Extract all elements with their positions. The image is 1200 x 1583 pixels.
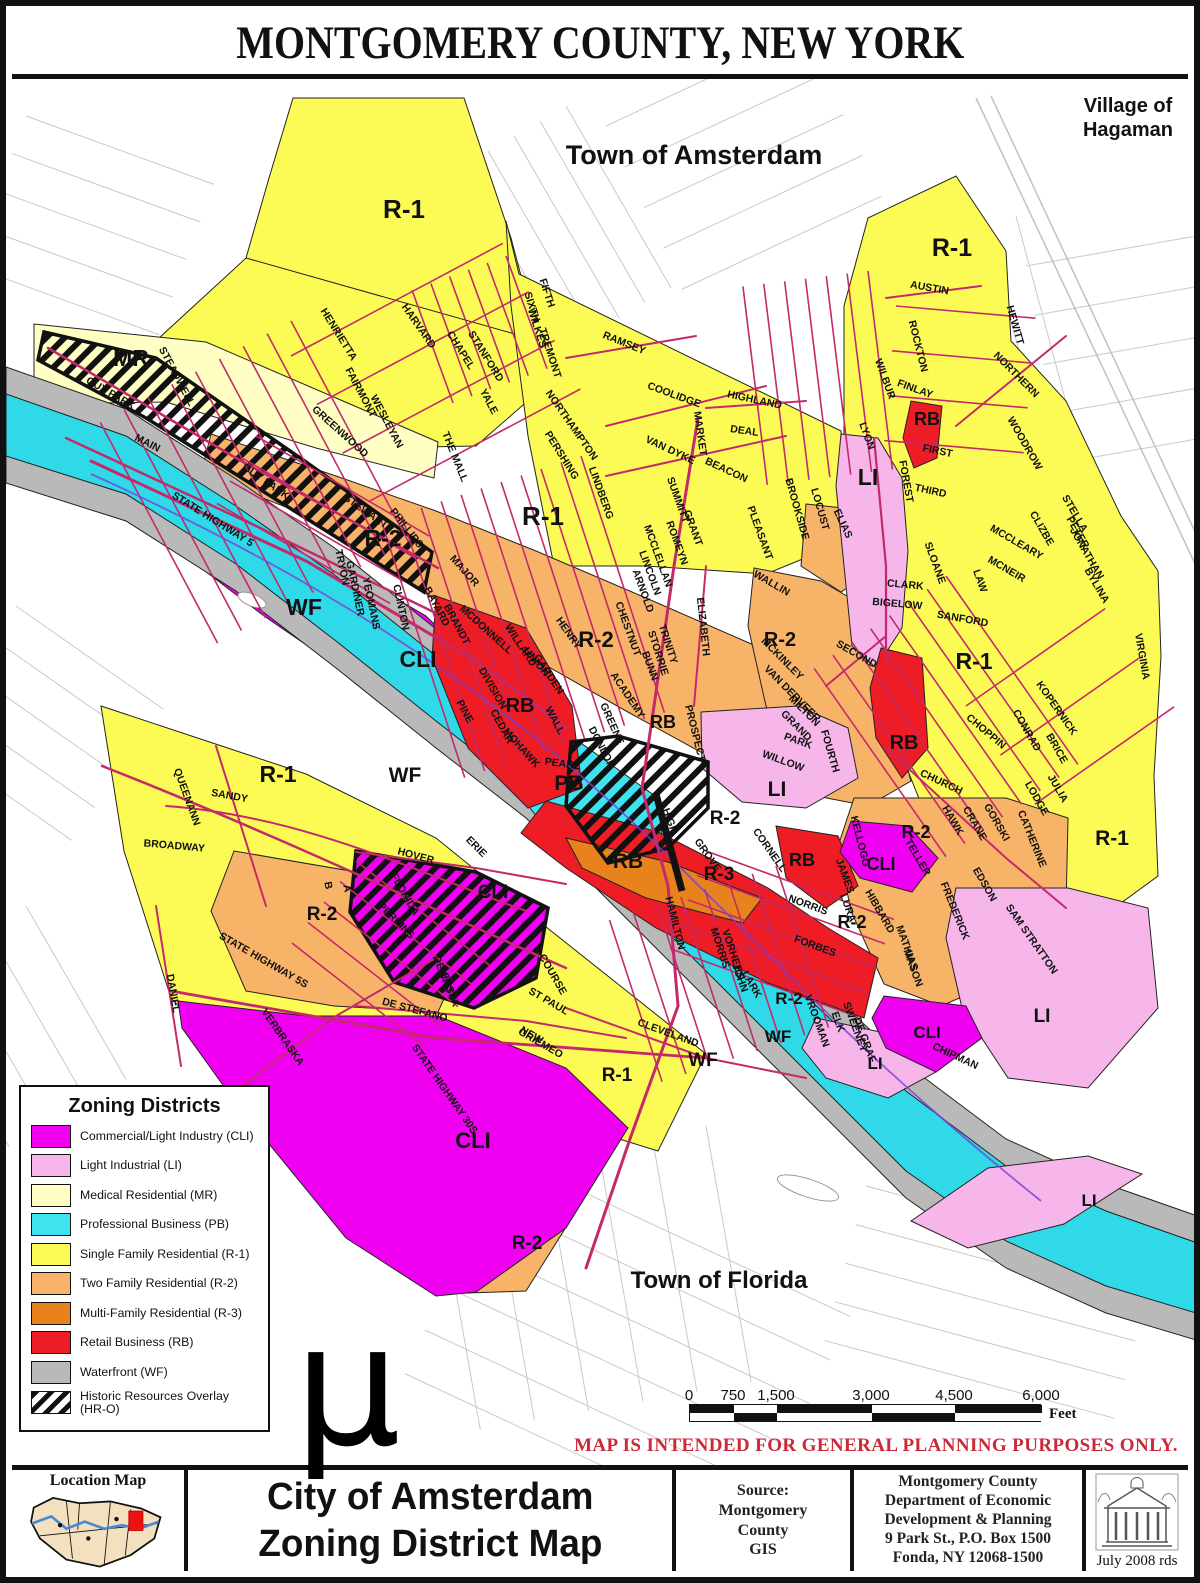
street-label: HENRIETTA <box>318 306 360 363</box>
legend-item: Professional Business (PB) <box>31 1213 258 1236</box>
grid-line <box>243 459 416 559</box>
street-label: MAJOR <box>447 553 482 590</box>
legend-label: Two Family Residential (R-2) <box>80 1277 238 1290</box>
grid-line <box>324 902 458 1007</box>
street-label: VROOMAN <box>802 993 832 1049</box>
zone-label: RB <box>506 695 535 717</box>
street-label: WOODROW <box>1005 415 1045 473</box>
street-label: VIRGINIA <box>1132 632 1152 680</box>
street-label: WILLARD <box>502 622 539 669</box>
scale-tick: 4,500 <box>935 1387 973 1404</box>
road <box>48 348 438 568</box>
street-label: DANIEL <box>164 973 183 1014</box>
zone-r2 <box>748 568 911 806</box>
scale-bar: 07501,5003,0004,5006,000 Feet <box>689 1387 1109 1422</box>
source-panel: Source:MontgomeryCountyGIS <box>676 1470 854 1571</box>
street-label: STATE HIGHWAY 30S <box>409 1042 480 1136</box>
street-label: TREMONT <box>536 327 564 381</box>
legend-label: Medical Residential (MR) <box>80 1189 217 1202</box>
scale-segment <box>734 1405 777 1413</box>
department-panel: Montgomery CountyDepartment of EconomicD… <box>854 1470 1086 1571</box>
road <box>91 461 566 728</box>
grid-line <box>706 851 894 919</box>
department-line: 9 Park St., P.O. Box 1500 <box>885 1530 1051 1549</box>
zone-r2 <box>838 798 1068 1006</box>
grid-line <box>826 276 850 475</box>
street-label: WESLEYAN <box>368 393 406 450</box>
zone-r1 <box>844 176 1161 936</box>
grid-line <box>805 279 829 478</box>
grid-line <box>462 166 567 348</box>
zone-label: CLI <box>913 1023 940 1042</box>
legend-swatch <box>31 1391 71 1414</box>
grid-line <box>172 384 289 605</box>
grid-line <box>1016 216 1083 467</box>
street-label: TRYON <box>332 548 351 586</box>
grid-line <box>381 521 464 778</box>
street-label: MAIN <box>133 432 162 455</box>
zone-label: R-2 <box>307 904 338 925</box>
street-label: FAIRMONT <box>342 366 379 421</box>
context-label: Town of Florida <box>631 1267 809 1294</box>
zone-label: WF <box>688 1050 718 1071</box>
zone-label: PB <box>554 772 583 795</box>
street-label: ELIAS <box>831 507 855 540</box>
zone-label: LI <box>867 1054 882 1073</box>
street-label: THE MALL <box>439 430 470 484</box>
zone-cli <box>350 851 548 1008</box>
zone-label: R-2 <box>837 912 866 932</box>
zone-r2 <box>801 504 878 592</box>
street-label: FORBES <box>792 933 837 959</box>
road <box>102 766 566 968</box>
zone-label: MR <box>113 345 149 371</box>
legend-items: Commercial/Light Industry (CLI)Light Ind… <box>21 1125 268 1416</box>
zone-label: R-2 <box>901 822 930 842</box>
street-label: FIFTH <box>537 277 558 309</box>
street-label: WALL <box>542 705 567 737</box>
zone-label: LI <box>768 778 787 801</box>
grid-line <box>889 616 1021 804</box>
legend-item: Retail Business (RB) <box>31 1331 258 1354</box>
street-label: GREENE <box>597 701 626 746</box>
grid-line <box>682 196 881 289</box>
department-line: Montgomery County <box>898 1473 1037 1492</box>
zone-li <box>946 888 1158 1088</box>
street-label: GREENWOOD <box>310 404 371 461</box>
legend-label: Light Industrial (LI) <box>80 1159 182 1172</box>
street-label: PERSHING <box>542 429 581 482</box>
grid-line <box>785 281 809 480</box>
map-banner: MONTGOMERY COUNTY, NEW YORK <box>12 12 1188 79</box>
zone-li <box>701 706 858 808</box>
street-label: NORRIS <box>787 893 829 918</box>
grid-line <box>776 866 829 1028</box>
grid-line <box>544 1155 589 1411</box>
street-label: LINDBERG <box>586 465 616 521</box>
grid-line <box>868 271 892 470</box>
source-line: County <box>738 1521 789 1541</box>
grid-line <box>450 277 491 390</box>
road <box>586 1006 678 1268</box>
street-label: B <box>321 881 334 891</box>
street-label: NORTHAMPTON <box>543 388 600 463</box>
department-line: Department of Economic <box>885 1492 1051 1511</box>
zone-rb <box>870 648 928 778</box>
grid-line <box>1052 384 1200 414</box>
grid-line <box>487 263 528 376</box>
zone-label: R-2 <box>710 808 741 829</box>
legend-swatch <box>31 1184 71 1207</box>
legend-swatch <box>31 1243 71 1266</box>
street-label: DE GRAF <box>851 1016 879 1065</box>
grid-line <box>598 1145 643 1401</box>
street-label: JULIA <box>1045 772 1071 805</box>
grid-line <box>923 241 990 492</box>
legend-title: Zoning Districts <box>21 1095 268 1118</box>
grid-line <box>743 286 767 485</box>
street-label: STORRIE <box>645 629 671 677</box>
street-label: ERIE <box>463 834 489 860</box>
legend-item: Two Family Residential (R-2) <box>31 1272 258 1295</box>
street-label: GUY PARK <box>240 461 292 502</box>
map-title-line2: Zoning District Map <box>258 1521 602 1567</box>
grid-line <box>566 106 671 288</box>
zone-cli <box>840 821 938 892</box>
street-label: TRINITY <box>656 623 680 666</box>
disclaimer-text: MAP IS INTENDED FOR GENERAL PLANNING PUR… <box>551 1435 1200 1457</box>
grid-line <box>1043 335 1200 365</box>
zone-li <box>836 434 908 668</box>
location-map-graphic <box>17 1490 179 1571</box>
zoning-legend: Zoning Districts Commercial/Light Indust… <box>19 1085 270 1432</box>
grid-line <box>308 922 442 1027</box>
road <box>171 991 706 1058</box>
grid-line <box>100 422 217 643</box>
zone-label: R-1 <box>932 234 972 262</box>
zone-label: CLI <box>455 1128 490 1153</box>
grid-line <box>540 121 645 303</box>
grid-line <box>317 292 529 405</box>
legend-item: Medical Residential (MR) <box>31 1184 258 1207</box>
street-label: HIGHLAND <box>726 388 783 411</box>
scale-segment <box>690 1413 734 1421</box>
zone-li <box>802 1018 936 1098</box>
road <box>236 958 436 1091</box>
grid-line <box>866 1186 1156 1264</box>
scale-segment <box>955 1413 1042 1421</box>
grid-line <box>435 1174 480 1430</box>
street-label: GARDINER <box>343 560 366 618</box>
grid-line <box>217 504 390 604</box>
road <box>566 336 696 358</box>
grid-line <box>26 906 126 1079</box>
grid-line <box>814 668 946 856</box>
road <box>166 806 526 911</box>
grid-line <box>256 436 429 536</box>
street-label: STEADWELL <box>156 345 198 409</box>
zone-label: RB <box>890 732 919 754</box>
grid-line <box>985 224 1052 475</box>
grid-line <box>896 306 1035 318</box>
road <box>606 386 766 426</box>
zone-label: LI <box>1081 1191 1096 1210</box>
street-label: BRANDT <box>441 602 473 647</box>
street-label: DE STEFANO <box>381 996 449 1025</box>
street-label: STELLA <box>1059 493 1090 535</box>
source-line: GIS <box>749 1540 777 1560</box>
legend-label: Retail Business (RB) <box>80 1336 193 1349</box>
grid-line <box>506 1156 850 1317</box>
grid-line <box>356 861 490 966</box>
street-label: BROADWAY <box>143 837 205 854</box>
grid-line <box>966 608 1105 706</box>
street-label: CORNELL <box>750 826 789 875</box>
footer-bar: Location Map City of Amsterdam Zoning Di… <box>12 1465 1188 1571</box>
street-label: ST PAUL <box>526 985 571 1018</box>
street-label: MOHAWK <box>500 726 542 771</box>
scale-bar-ticks: 07501,5003,0004,5006,000 <box>689 1387 1109 1404</box>
grid-line <box>16 606 163 709</box>
scale-tick: 0 <box>685 1387 693 1404</box>
legend-swatch <box>31 1331 71 1354</box>
street-label: WILBUR <box>872 357 898 401</box>
zone-label: R-2 <box>364 525 401 551</box>
street-label: MCNEIR <box>986 554 1028 585</box>
bridge <box>656 794 682 891</box>
street-label: VERBRASKA <box>258 1007 306 1069</box>
grid-line <box>663 155 862 248</box>
street-label: JONATHAN <box>1067 526 1106 582</box>
road <box>606 436 786 476</box>
street-label: PARK <box>782 731 814 752</box>
river-island <box>236 589 268 611</box>
street-label: HIBBARD <box>862 888 897 936</box>
street-label: MILTON <box>786 693 822 729</box>
scale-segment <box>734 1413 777 1421</box>
amsterdam-highlight <box>129 1511 143 1530</box>
grid-line <box>12 154 200 222</box>
grid-line <box>501 482 584 739</box>
street-label: BUNN <box>639 650 661 683</box>
zone-li <box>911 1156 1142 1248</box>
grid-line <box>489 1164 534 1420</box>
scale-tick: 3,000 <box>852 1387 890 1404</box>
street-label: HARVARD <box>399 302 439 351</box>
zone-label: WF <box>389 764 422 787</box>
legend-swatch <box>31 1272 71 1295</box>
zone-label: R-1 <box>522 501 564 531</box>
grid-line <box>633 912 686 1074</box>
road <box>642 418 698 788</box>
street-label: TELLER <box>902 837 933 879</box>
grid-line <box>6 266 159 334</box>
legend-swatch <box>31 1125 71 1148</box>
zone-label: LI <box>858 464 878 490</box>
zone-r2 <box>201 434 851 796</box>
street-label: STEWART <box>341 492 390 532</box>
street-label: ROCKTON <box>906 319 930 373</box>
grid-line <box>6 229 173 297</box>
legend-item: Commercial/Light Industry (CLI) <box>31 1125 258 1148</box>
zone-pb <box>506 728 662 853</box>
grid-line <box>461 495 544 752</box>
street-label: FOREST <box>896 459 915 504</box>
street-label: BROOKSIDE <box>782 477 811 541</box>
road <box>66 438 446 618</box>
street-label: ESSEX <box>438 971 461 1008</box>
road <box>886 748 1066 908</box>
legend-swatch <box>31 1302 71 1325</box>
street-label: WILKES <box>525 307 549 350</box>
location-map-title: Location Map <box>50 1472 146 1490</box>
street-label: HENRY <box>553 615 584 652</box>
zone-label: R-1 <box>259 761 296 787</box>
grid-line <box>384 211 489 393</box>
source-line: Source: <box>737 1481 789 1501</box>
grid-line <box>410 196 515 378</box>
grid-line <box>670 949 858 1017</box>
scale-bar-unit: Feet <box>1049 1406 1076 1423</box>
zone-label: CLI <box>399 646 436 672</box>
zone-label: CLI <box>478 882 509 903</box>
street-label: GARDEN <box>531 652 566 696</box>
street-label: GRIEMEO <box>516 1026 565 1061</box>
street-label: FINLAY <box>896 377 935 401</box>
legend-label: Professional Business (PB) <box>80 1218 229 1231</box>
grid-line <box>884 440 1023 452</box>
zone-label: R-1 <box>955 648 992 674</box>
legend-item: Waterfront (WF) <box>31 1361 258 1384</box>
street-label: HEWITT <box>1004 304 1027 347</box>
grid-line <box>343 340 555 453</box>
street-label: NEW <box>518 1024 545 1047</box>
scale-segment <box>955 1405 1042 1413</box>
street-label: SANDY <box>210 787 248 805</box>
road <box>956 336 1066 426</box>
street-label: CLEVELAND <box>636 1017 701 1050</box>
legend-item: Single Family Residential (R-1) <box>31 1243 258 1266</box>
grid-line <box>908 602 1040 790</box>
context-label: Town of Amsterdam <box>566 140 823 170</box>
zone-rb <box>521 801 878 1018</box>
street-label: BAYARD <box>421 585 452 629</box>
street-label: DIVISION <box>476 666 509 712</box>
grid-line <box>445 1287 789 1448</box>
street-label: YALE <box>477 387 500 417</box>
grid-line <box>625 74 824 167</box>
street-label: CHOPPIN <box>964 712 1008 752</box>
grid-line <box>706 1126 751 1382</box>
grid-line <box>644 115 843 208</box>
street-label: NORTHERN <box>991 350 1042 401</box>
street-label: DONLON <box>586 725 618 771</box>
road <box>216 746 266 906</box>
grid-line <box>657 905 710 1067</box>
scale-segment <box>777 1405 872 1413</box>
street-label: WALLIN <box>751 568 792 599</box>
street-label: PERKINS <box>375 900 416 941</box>
courthouse-sketch <box>1094 1472 1180 1552</box>
street-label: QUEENANN <box>171 767 203 828</box>
street-label: VORHEES <box>719 928 746 981</box>
zone-r2 <box>211 851 476 1012</box>
grid-line <box>401 514 484 771</box>
street-label: FOURTH <box>818 728 842 773</box>
department-line: Fonda, NY 12068-1500 <box>893 1549 1044 1568</box>
road <box>566 1008 806 1078</box>
street-label: BRICE <box>1043 731 1070 765</box>
zone-label: WF <box>765 1027 791 1046</box>
street-label: LINCOLN <box>636 549 663 597</box>
grid-line <box>847 274 871 473</box>
grid-line <box>486 1200 830 1361</box>
street-label: CEDAR <box>488 707 516 746</box>
scale-bar-graphic <box>689 1404 1041 1422</box>
grid-line <box>506 256 547 369</box>
zone-label: R-2 <box>775 989 802 1008</box>
street-label: HIGH <box>660 807 680 836</box>
grid-line <box>892 351 1031 363</box>
street-label: CHAPEL <box>444 329 477 372</box>
grid-line <box>431 283 472 396</box>
grid-line <box>752 874 805 1036</box>
legend-swatch <box>31 1213 71 1236</box>
legend-swatch <box>31 1154 71 1177</box>
street-label: YEOMANS <box>360 576 383 630</box>
street-label: CLIZBE <box>1027 509 1056 548</box>
street-label: LARK <box>739 969 764 1001</box>
street-label: HAWK <box>939 804 966 838</box>
zone-label: R-1 <box>602 1065 633 1086</box>
street-label: CLINTON <box>390 583 411 631</box>
grid-line <box>892 249 959 500</box>
street-label: KELLOGG <box>848 815 872 868</box>
scale-segment <box>872 1405 955 1413</box>
street-label: COURSE <box>536 952 569 997</box>
street-label: RAMSEY <box>601 329 647 357</box>
road <box>826 636 886 686</box>
street-label: ELIZABETH <box>694 597 712 657</box>
grid-line <box>728 881 781 1043</box>
street-label: HOVER <box>396 845 436 866</box>
scale-segment <box>872 1413 955 1421</box>
street-label: LOCUST <box>808 487 832 532</box>
road <box>886 286 981 298</box>
grid-line <box>230 481 403 581</box>
grid-line <box>267 334 384 555</box>
street-label: FREDERICK <box>938 880 972 942</box>
county-title: MONTGOMERY COUNTY, NEW YORK <box>236 16 964 70</box>
river-island <box>775 1170 841 1207</box>
legend-swatch <box>31 1361 71 1384</box>
street-label: GRANT <box>681 508 705 548</box>
zone-label: WF <box>286 594 322 620</box>
zone-label: LI <box>1034 1006 1051 1027</box>
zone-r2 <box>436 1156 578 1294</box>
zone-r3 <box>566 838 762 923</box>
street-label: DEWITT <box>430 954 455 996</box>
grid-line <box>871 629 1003 817</box>
zone-rb <box>903 401 942 468</box>
street-label: DEAL <box>729 423 760 439</box>
zone-label: CLI <box>867 854 896 874</box>
scale-segment <box>690 1405 734 1413</box>
street-label: SUMMITT <box>664 475 692 525</box>
grid-line <box>833 655 965 843</box>
grid-line <box>124 410 241 631</box>
street-label: FIRST <box>922 442 955 460</box>
